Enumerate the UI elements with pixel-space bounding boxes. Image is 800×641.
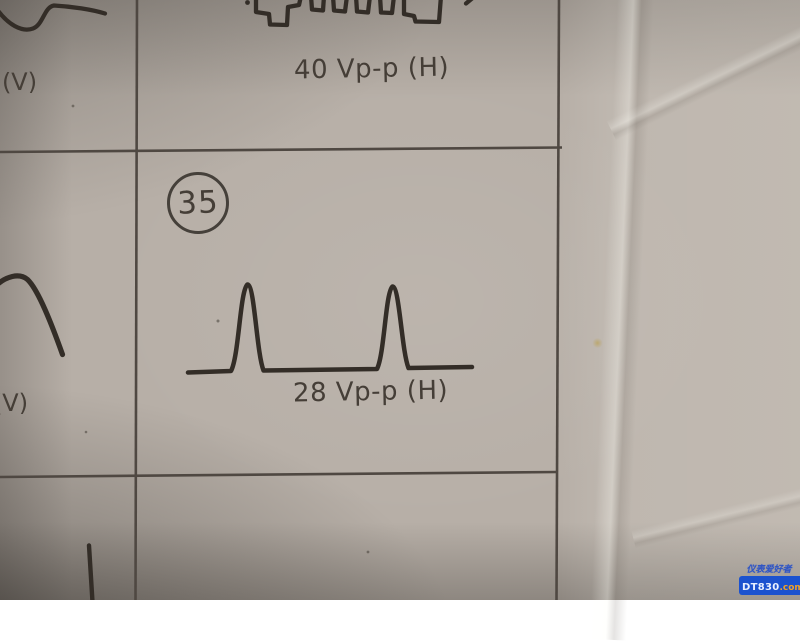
grid-line-vertical-right [557,0,560,600]
step-number: 35 [177,184,220,221]
pulse-train-waveform [256,0,475,25]
two-pulse-waveform [188,285,472,373]
top-waveform-voltage-label: 40 Vp-p (H) [294,53,450,86]
ink-dot [245,0,250,5]
printed-ink-layer [0,0,800,600]
dip-curve-waveform [0,6,105,30]
left-top-voltage-unit-label: (V) [2,68,38,97]
paper-specks [72,105,370,554]
middle-waveform-voltage-label: 28 Vp-p (H) [293,376,449,409]
grid-line-vertical-left [136,0,138,600]
vertical-stroke-waveform [89,546,93,601]
watermark-domain-suffix: .com [780,583,800,593]
watermark-url-badge: DT830.com [739,576,800,595]
paper-page: 40 Vp-p (H) 35 28 Vp-p (H) (V) (V) 仪表爱好者… [0,0,800,600]
left-middle-voltage-unit-label: (V) [0,389,28,418]
watermark-chinese-text: 仪表爱好者 [739,566,799,575]
grid-line-horizontal-top [0,148,562,153]
site-watermark: 仪表爱好者 DT830.com [739,566,799,595]
watermark-brand-text: DT830 [742,582,780,593]
grid-line-horizontal-bottom [0,472,558,477]
falling-arc-waveform [0,276,63,355]
